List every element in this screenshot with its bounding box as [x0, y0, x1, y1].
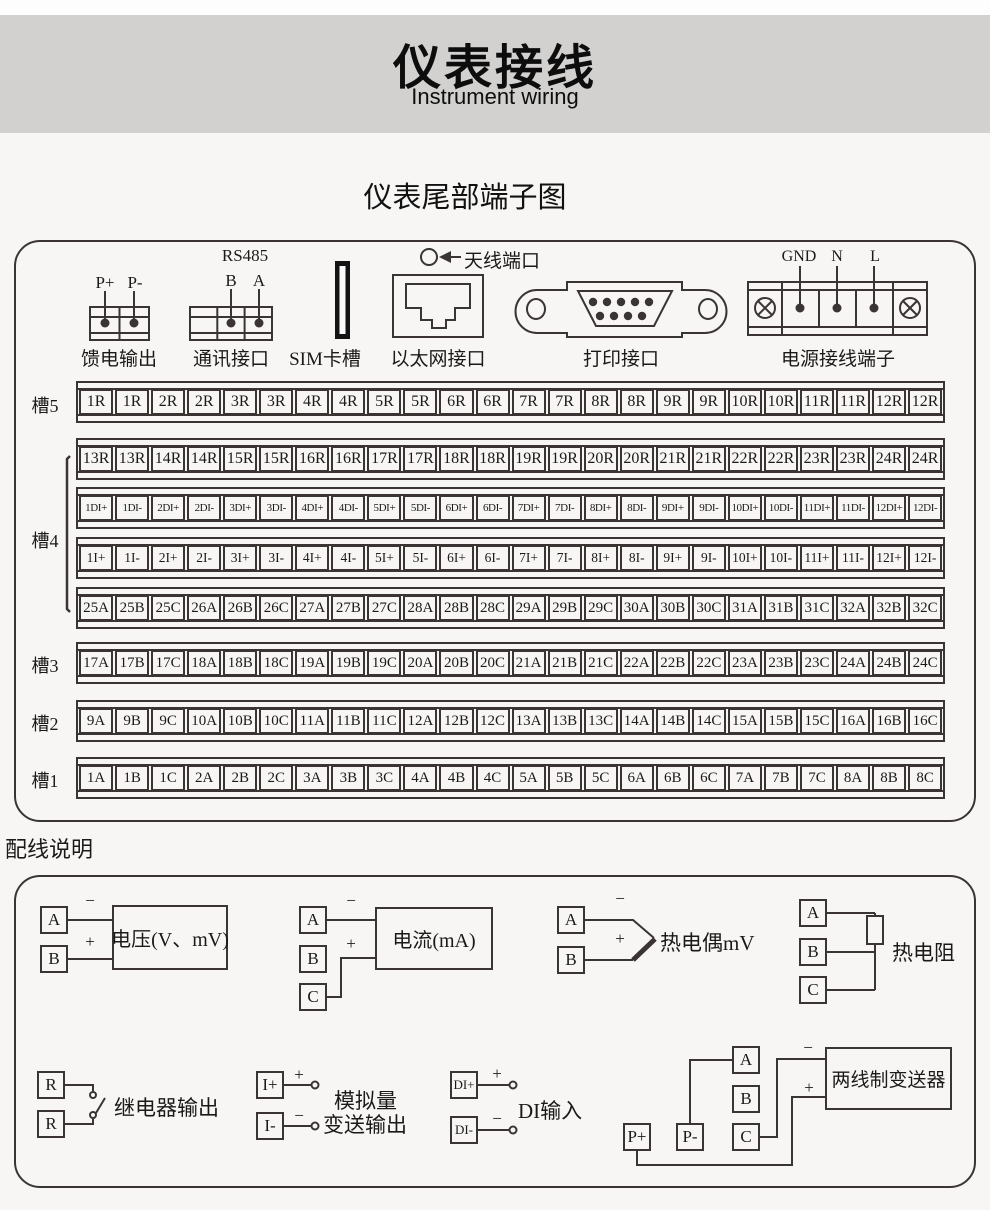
terminal-cell: 6B — [656, 765, 690, 791]
terminal-cell: 24R — [872, 446, 906, 472]
terminal-cell: 32A — [836, 595, 870, 621]
terminal-cell: 5R — [367, 389, 401, 415]
terminal-b: B — [40, 945, 68, 973]
terminal-cell: 7DI- — [548, 495, 582, 521]
terminal-b: B — [557, 946, 585, 974]
terminal-cell: 16A — [836, 708, 870, 734]
terminal-cell: 12I+ — [872, 545, 906, 571]
terminal-strip-di: 1DI+1DI-2DI+2DI-3DI+3DI-4DI+4DI-5DI+5DI-… — [76, 487, 945, 529]
terminal-cell: 19C — [367, 650, 401, 676]
terminal-cell: 17C — [151, 650, 185, 676]
terminal-cell: 6C — [692, 765, 726, 791]
terminal-cell: 29B — [548, 595, 582, 621]
terminal-cell: 12C — [476, 708, 510, 734]
terminal-cell: 7I+ — [512, 545, 546, 571]
terminal-cell: 8DI+ — [584, 495, 618, 521]
terminal-cell: 10I+ — [728, 545, 762, 571]
minus-sign: − — [85, 891, 95, 911]
terminal-cell: 11C — [367, 708, 401, 734]
terminal-cell: 3R — [223, 389, 257, 415]
power-pin-label-n: N — [831, 248, 843, 266]
terminal-cell: 15A — [728, 708, 762, 734]
terminal-cell: 31B — [764, 595, 798, 621]
terminal-cell: 4R — [331, 389, 365, 415]
terminal-cell: 9I+ — [656, 545, 690, 571]
terminal-cell: 4R — [295, 389, 329, 415]
di-input-label: DI输入 — [518, 1095, 582, 1125]
terminal-cell: 6I+ — [439, 545, 473, 571]
terminal-cell: 13A — [512, 708, 546, 734]
comm-pin-label-a: A — [253, 271, 265, 291]
terminal-cell: 2DI- — [187, 495, 221, 521]
terminal-cell: 7B — [764, 765, 798, 791]
slot-label-4: 槽4 — [22, 527, 68, 553]
terminal-cell: 9I- — [692, 545, 726, 571]
current-device-box: 电流(mA) — [375, 907, 493, 970]
minus-sign: − — [492, 1109, 502, 1129]
terminal-cell: 8I- — [620, 545, 654, 571]
terminal-cell: 26A — [187, 595, 221, 621]
terminal-cell: 11B — [331, 708, 365, 734]
terminal-cell: 9A — [79, 708, 113, 734]
terminal-cell: 23R — [836, 446, 870, 472]
terminal-cell: 28A — [403, 595, 437, 621]
terminal-cell: 14B — [656, 708, 690, 734]
terminal-cell: 10R — [728, 389, 762, 415]
terminal-cell: 5I- — [403, 545, 437, 571]
terminal-cell: 12B — [439, 708, 473, 734]
terminal-cell: 19B — [331, 650, 365, 676]
terminal-cell: 13C — [584, 708, 618, 734]
terminal-cell: 17A — [79, 650, 113, 676]
terminal-cell: 4DI+ — [295, 495, 329, 521]
terminal-cell: 2DI+ — [151, 495, 185, 521]
terminal-cell: 4B — [439, 765, 473, 791]
terminal-cell: 7R — [512, 389, 546, 415]
terminal-cell: 7DI+ — [512, 495, 546, 521]
terminal-cell: 14R — [187, 446, 221, 472]
feed-pin-label-pplus: P+ — [95, 273, 114, 293]
terminal-cell: 8R — [584, 389, 618, 415]
terminal-cell: 22C — [692, 650, 726, 676]
terminal-cell: 20A — [403, 650, 437, 676]
terminal-cell: 23A — [728, 650, 762, 676]
terminal-cell: 22B — [656, 650, 690, 676]
terminal-cell: 10C — [259, 708, 293, 734]
terminal-cell: 5B — [548, 765, 582, 791]
terminal-cell: 22A — [620, 650, 654, 676]
terminal-cell: 23R — [800, 446, 834, 472]
terminal-cell: 4I- — [331, 545, 365, 571]
page-subtitle: Instrument wiring — [0, 84, 990, 110]
terminal-cell: 18B — [223, 650, 257, 676]
terminal-cell: 25C — [151, 595, 185, 621]
terminal-cell: 25B — [115, 595, 149, 621]
terminal-r1: R — [37, 1071, 65, 1099]
terminal-b: B — [799, 938, 827, 966]
terminal-cell: 16R — [331, 446, 365, 472]
terminal-cell: 12R — [908, 389, 942, 415]
terminal-cell: 1B — [115, 765, 149, 791]
terminal-cell: 3DI- — [259, 495, 293, 521]
terminal-cell: 1C — [151, 765, 185, 791]
terminal-a: A — [557, 906, 585, 934]
plus-sign: + — [615, 929, 625, 949]
terminal-section-heading: 仪表尾部端子图 — [0, 174, 930, 216]
terminal-cell: 17B — [115, 650, 149, 676]
terminal-cell: 2R — [187, 389, 221, 415]
terminal-strip-i: 1I+1I-2I+2I-3I+3I-4I+4I-5I+5I-6I+6I-7I+7… — [76, 537, 945, 579]
feed-pin-label-pminus: P- — [127, 273, 142, 293]
slot-label-2: 槽2 — [22, 710, 68, 736]
terminal-cell: 30A — [620, 595, 654, 621]
comm-pin-label-b: B — [225, 271, 236, 291]
slot-label-3: 槽3 — [22, 652, 68, 678]
terminal-cell: 2C — [259, 765, 293, 791]
terminal-cell: 4I+ — [295, 545, 329, 571]
terminal-cell: 8R — [620, 389, 654, 415]
terminal-cell: 21R — [656, 446, 690, 472]
power-pin-label-l: L — [870, 248, 880, 266]
terminal-cell: 18A — [187, 650, 221, 676]
terminal-c: C — [799, 976, 827, 1004]
terminal-cell: 23C — [800, 650, 834, 676]
terminal-cell: 11I- — [836, 545, 870, 571]
terminal-cell: 17R — [367, 446, 401, 472]
terminal-cell: 9DI- — [692, 495, 726, 521]
terminal-cell: 1R — [115, 389, 149, 415]
terminal-cell: 14R — [151, 446, 185, 472]
terminal-cell: 6R — [439, 389, 473, 415]
terminal-cell: 2A — [187, 765, 221, 791]
terminal-cell: 1DI- — [115, 495, 149, 521]
terminal-cell: 10A — [187, 708, 221, 734]
terminal-strip-slot1: 1A1B1C2A2B2C3A3B3C4A4B4C5A5B5C6A6B6C7A7B… — [76, 757, 945, 799]
terminal-cell: 16C — [908, 708, 942, 734]
transmitter-device-box: 两线制变送器 — [825, 1047, 952, 1110]
terminal-cell: 30C — [692, 595, 726, 621]
terminal-b: B — [732, 1085, 760, 1113]
terminal-cell: 30B — [656, 595, 690, 621]
terminal-cell: 3I- — [259, 545, 293, 571]
voltage-device-box: 电压(V、mV) — [112, 905, 228, 970]
terminal-cell: 11A — [295, 708, 329, 734]
terminal-cell: 18C — [259, 650, 293, 676]
terminal-cell: 1I+ — [79, 545, 113, 571]
terminal-cell: 11I+ — [800, 545, 834, 571]
terminal-cell: 9R — [656, 389, 690, 415]
terminal-cell: 7A — [728, 765, 762, 791]
terminal-diminus: DI- — [450, 1116, 478, 1144]
terminal-a: A — [40, 906, 68, 934]
terminal-cell: 12I- — [908, 545, 942, 571]
terminal-cell: 19R — [548, 446, 582, 472]
terminal-cell: 9B — [115, 708, 149, 734]
terminal-cell: 22R — [764, 446, 798, 472]
terminal-c: C — [732, 1123, 760, 1151]
terminal-cell: 6A — [620, 765, 654, 791]
terminal-cell: 19A — [295, 650, 329, 676]
wiring-section-heading: 配线说明 — [5, 832, 93, 864]
terminal-cell: 2I- — [187, 545, 221, 571]
terminal-cell: 2R — [151, 389, 185, 415]
terminal-cell: 13R — [115, 446, 149, 472]
terminal-cell: 13R — [79, 446, 113, 472]
comm-bus-label: RS485 — [222, 246, 268, 266]
terminal-cell: 11R — [836, 389, 870, 415]
terminal-cell: 6I- — [476, 545, 510, 571]
terminal-strip-relay2: 13R13R14R14R15R15R16R16R17R17R18R18R19R1… — [76, 438, 945, 480]
terminal-cell: 20R — [620, 446, 654, 472]
terminal-cell: 5C — [584, 765, 618, 791]
terminal-cell: 5R — [403, 389, 437, 415]
terminal-cell: 21A — [512, 650, 546, 676]
terminal-cell: 11DI- — [836, 495, 870, 521]
terminal-cell: 23B — [764, 650, 798, 676]
terminal-cell: 12A — [403, 708, 437, 734]
terminal-cell: 12R — [872, 389, 906, 415]
terminal-cell: 14C — [692, 708, 726, 734]
minus-sign: − — [803, 1038, 813, 1058]
plus-sign: + — [346, 934, 356, 954]
terminal-cell: 10DI- — [764, 495, 798, 521]
terminal-cell: 32C — [908, 595, 942, 621]
terminal-cell: 31A — [728, 595, 762, 621]
terminal-cell: 21B — [548, 650, 582, 676]
terminal-cell: 1I- — [115, 545, 149, 571]
terminal-diplus: DI+ — [450, 1071, 478, 1099]
terminal-cell: 4A — [403, 765, 437, 791]
terminal-cell: 15R — [259, 446, 293, 472]
terminal-pminus: P- — [676, 1123, 704, 1151]
terminal-strip-slot5: 1R1R2R2R3R3R4R4R5R5R6R6R7R7R8R8R9R9R10R1… — [76, 381, 945, 423]
terminal-cell: 3I+ — [223, 545, 257, 571]
terminal-cell: 3B — [331, 765, 365, 791]
terminal-cell: 7C — [800, 765, 834, 791]
terminal-cell: 27B — [331, 595, 365, 621]
terminal-cell: 16B — [872, 708, 906, 734]
minus-sign: − — [294, 1106, 304, 1126]
terminal-cell: 12DI- — [908, 495, 942, 521]
terminal-cell: 24C — [908, 650, 942, 676]
terminal-cell: 6R — [476, 389, 510, 415]
terminal-cell: 21C — [584, 650, 618, 676]
plus-sign: + — [492, 1064, 502, 1084]
terminal-cell: 3C — [367, 765, 401, 791]
rtd-label: 热电阻 — [892, 937, 955, 967]
terminal-cell: 29C — [584, 595, 618, 621]
terminal-a: A — [732, 1046, 760, 1074]
terminal-cell: 9DI+ — [656, 495, 690, 521]
feed-caption: 馈电输出 — [81, 344, 157, 371]
slot-label-5: 槽5 — [22, 392, 68, 418]
terminal-cell: 26C — [259, 595, 293, 621]
terminal-cell: 8DI- — [620, 495, 654, 521]
terminal-cell: 15B — [764, 708, 798, 734]
terminal-b: B — [299, 945, 327, 973]
terminal-cell: 21R — [692, 446, 726, 472]
terminal-cell: 10DI+ — [728, 495, 762, 521]
top-white-strip — [0, 0, 990, 15]
terminal-cell: 7R — [548, 389, 582, 415]
terminal-cell: 20B — [439, 650, 473, 676]
plus-sign: + — [294, 1065, 304, 1085]
terminal-cell: 12DI+ — [872, 495, 906, 521]
thermocouple-label: 热电偶mV — [660, 927, 755, 957]
terminal-cell: 5A — [512, 765, 546, 791]
terminal-cell: 3DI+ — [223, 495, 257, 521]
terminal-r2: R — [37, 1110, 65, 1138]
relay-label: 继电器输出 — [114, 1092, 219, 1122]
terminal-cell: 6DI+ — [439, 495, 473, 521]
terminal-strip-ch25-32: 25A25B25C26A26B26C27A27B27C28A28B28C29A2… — [76, 587, 945, 629]
terminal-cell: 5DI- — [403, 495, 437, 521]
terminal-cell: 22R — [728, 446, 762, 472]
terminal-cell: 20C — [476, 650, 510, 676]
terminal-cell: 11DI+ — [800, 495, 834, 521]
terminal-cell: 8I+ — [584, 545, 618, 571]
terminal-cell: 10I- — [764, 545, 798, 571]
terminal-cell: 3A — [295, 765, 329, 791]
terminal-cell: 9R — [692, 389, 726, 415]
terminal-cell: 31C — [800, 595, 834, 621]
terminal-strip-slot2: 9A9B9C10A10B10C11A11B11C12A12B12C13A13B1… — [76, 700, 945, 742]
terminal-cell: 6DI- — [476, 495, 510, 521]
terminal-cell: 15R — [223, 446, 257, 472]
antenna-caption: 天线端口 — [464, 246, 540, 273]
terminal-cell: 8B — [872, 765, 906, 791]
terminal-a: A — [799, 899, 827, 927]
slot-label-1: 槽1 — [22, 767, 68, 793]
terminal-cell: 27A — [295, 595, 329, 621]
plus-sign: + — [804, 1078, 814, 1098]
minus-sign: − — [346, 891, 356, 911]
terminal-cell: 1A — [79, 765, 113, 791]
terminal-cell: 2I+ — [151, 545, 185, 571]
terminal-cell: 13B — [548, 708, 582, 734]
minus-sign: − — [615, 889, 625, 909]
terminal-cell: 14A — [620, 708, 654, 734]
terminal-cell: 24R — [908, 446, 942, 472]
terminal-iminus: I- — [256, 1112, 284, 1140]
ethernet-caption: 以太网接口 — [390, 344, 485, 371]
power-caption: 电源接线端子 — [781, 344, 895, 371]
terminal-cell: 24B — [872, 650, 906, 676]
terminal-cell: 32B — [872, 595, 906, 621]
terminal-cell: 15C — [800, 708, 834, 734]
terminal-cell: 2B — [223, 765, 257, 791]
terminal-strip-slot3: 17A17B17C18A18B18C19A19B19C20A20B20C21A2… — [76, 642, 945, 684]
terminal-cell: 1R — [79, 389, 113, 415]
terminal-cell: 10R — [764, 389, 798, 415]
terminal-cell: 24A — [836, 650, 870, 676]
terminal-iplus: I+ — [256, 1071, 284, 1099]
power-pin-label-gnd: GND — [782, 248, 817, 266]
terminal-cell: 8C — [908, 765, 942, 791]
plus-sign: + — [85, 932, 95, 952]
terminal-cell: 18R — [476, 446, 510, 472]
terminal-cell: 19R — [512, 446, 546, 472]
terminal-cell: 7I- — [548, 545, 582, 571]
terminal-c: C — [299, 983, 327, 1011]
terminal-cell: 18R — [439, 446, 473, 472]
terminal-cell: 3R — [259, 389, 293, 415]
terminal-cell: 28C — [476, 595, 510, 621]
terminal-cell: 9C — [151, 708, 185, 734]
terminal-cell: 4C — [476, 765, 510, 791]
terminal-cell: 11R — [800, 389, 834, 415]
analog-out-label-line2: 变送输出 — [323, 1109, 407, 1139]
terminal-cell: 25A — [79, 595, 113, 621]
terminal-cell: 17R — [403, 446, 437, 472]
terminal-cell: 4DI- — [331, 495, 365, 521]
instrument-wiring-page: 仪表接线 Instrument wiring 仪表尾部端子图 配线说明 — [0, 0, 990, 1210]
terminal-cell: 1DI+ — [79, 495, 113, 521]
comm-caption: 通讯接口 — [193, 344, 269, 371]
terminal-cell: 16R — [295, 446, 329, 472]
terminal-cell: 27C — [367, 595, 401, 621]
terminal-cell: 5DI+ — [367, 495, 401, 521]
terminal-cell: 28B — [439, 595, 473, 621]
terminal-cell: 8A — [836, 765, 870, 791]
sim-caption: SIM卡槽 — [289, 344, 361, 371]
terminal-pplus: P+ — [623, 1123, 651, 1151]
printer-caption: 打印接口 — [583, 344, 659, 371]
terminal-cell: 20R — [584, 446, 618, 472]
terminal-cell: 26B — [223, 595, 257, 621]
terminal-a: A — [299, 906, 327, 934]
terminal-cell: 10B — [223, 708, 257, 734]
terminal-cell: 5I+ — [367, 545, 401, 571]
terminal-cell: 29A — [512, 595, 546, 621]
